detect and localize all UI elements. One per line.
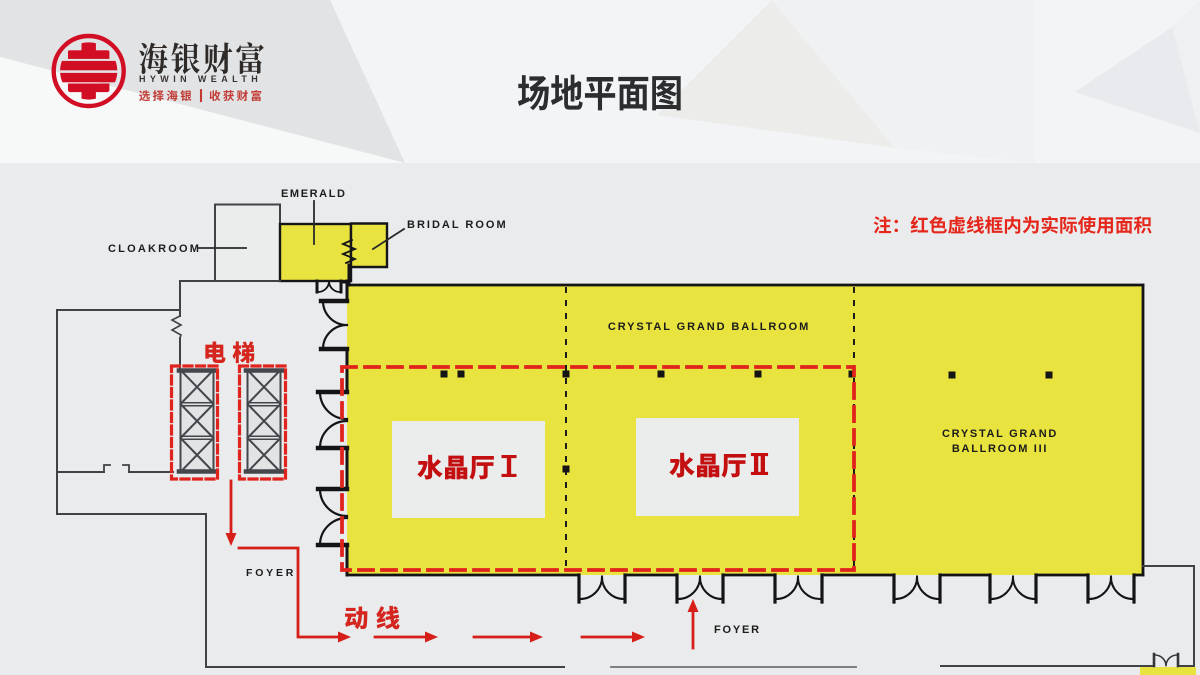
svg-text:CRYSTAL GRAND BALLROOM: CRYSTAL GRAND BALLROOM	[608, 321, 810, 333]
svg-text:HYWIN WEALTH: HYWIN WEALTH	[139, 74, 262, 84]
svg-text:FOYER: FOYER	[714, 624, 761, 636]
svg-text:FOYER: FOYER	[246, 567, 296, 579]
svg-text:CRYSTAL GRAND: CRYSTAL GRAND	[942, 428, 1058, 440]
svg-text:EMERALD: EMERALD	[281, 188, 347, 200]
svg-text:CLOAKROOM: CLOAKROOM	[108, 243, 201, 255]
svg-text:BRIDAL ROOM: BRIDAL ROOM	[407, 219, 508, 231]
svg-text:BALLROOM III: BALLROOM III	[952, 443, 1048, 455]
